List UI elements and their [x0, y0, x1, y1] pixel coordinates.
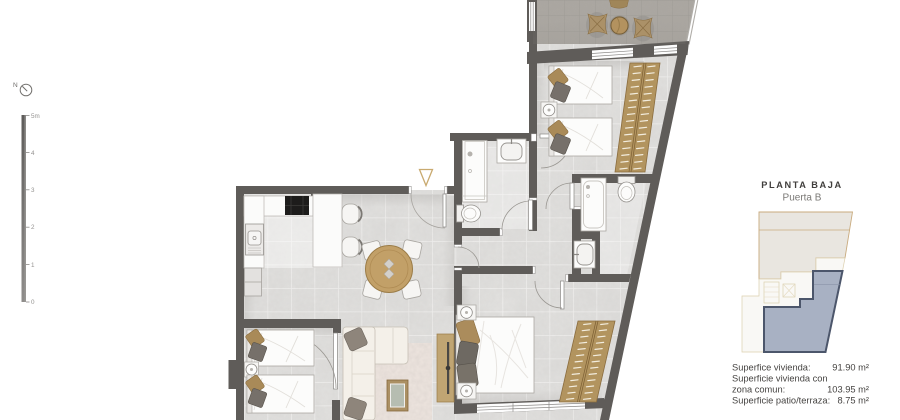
- svg-text:3: 3: [31, 187, 35, 194]
- svg-text:5m: 5m: [31, 113, 40, 120]
- svg-text:Superfice vivienda:: Superfice vivienda:: [732, 363, 811, 373]
- svg-text:103.95 m²: 103.95 m²: [827, 385, 869, 395]
- svg-text:Superficie vivienda con: Superficie vivienda con: [732, 374, 828, 384]
- svg-text:2: 2: [31, 224, 35, 231]
- svg-text:4: 4: [31, 150, 35, 157]
- svg-text:1: 1: [31, 262, 35, 269]
- svg-text:zona comun:: zona comun:: [732, 385, 785, 395]
- svg-text:Superficie patio/terraza:: Superficie patio/terraza:: [732, 396, 830, 406]
- svg-text:91.90 m²: 91.90 m²: [832, 363, 869, 373]
- svg-text:0: 0: [31, 299, 35, 306]
- svg-text:8.75 m²: 8.75 m²: [837, 396, 869, 406]
- svg-text:Puerta B: Puerta B: [783, 193, 822, 204]
- svg-text:N: N: [13, 82, 18, 89]
- svg-text:PLANTA BAJA: PLANTA BAJA: [761, 180, 842, 190]
